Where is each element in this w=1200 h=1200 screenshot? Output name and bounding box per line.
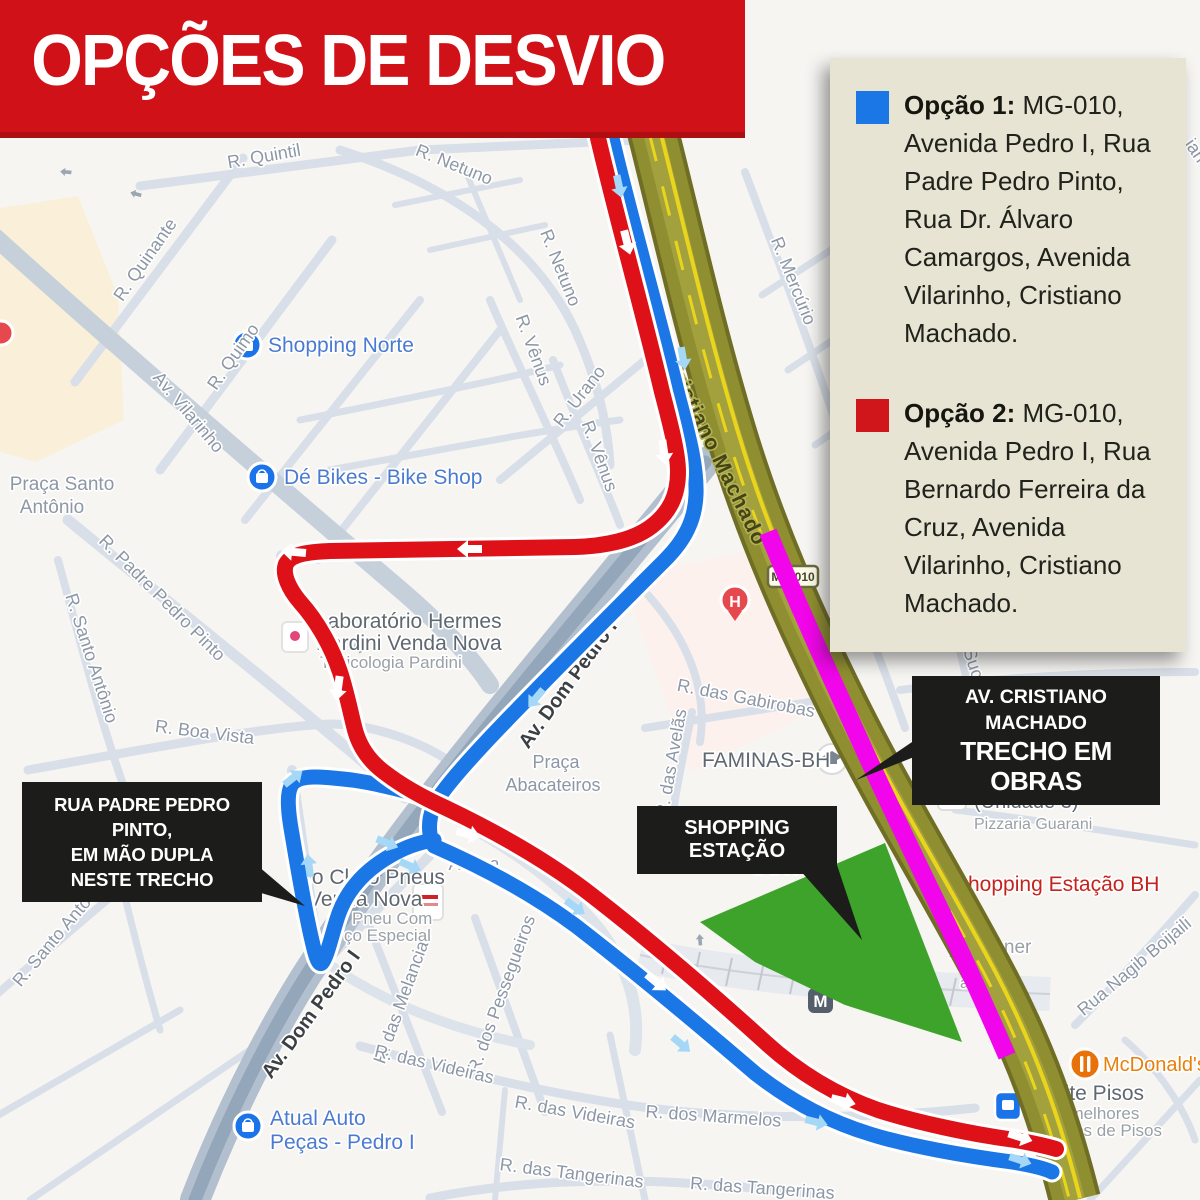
- callout-line: RUA PADRE PEDRO PINTO,: [28, 792, 256, 842]
- infographic-root: { "title": "OPÇÕES DE DESVIO", "legend":…: [0, 0, 1200, 1200]
- street-label: Praça: [532, 752, 580, 772]
- title-banner: OPÇÕES DE DESVIO: [0, 0, 745, 138]
- svg-text:H: H: [729, 594, 741, 611]
- poi-label: Peças - Pedro I: [270, 1131, 415, 1154]
- atual-auto-icon: [234, 1112, 262, 1140]
- street-label: Antônio: [20, 497, 84, 518]
- street-label: Abacateiros: [505, 775, 600, 795]
- option1-color-swatch: [856, 91, 889, 124]
- callout-line: TRECHO EM OBRAS: [916, 736, 1156, 796]
- poi-label: McDonald's: [1103, 1054, 1200, 1076]
- poi-label: Laboratório Hermes: [316, 610, 502, 633]
- lab-pardini-icon: [282, 622, 308, 652]
- poi-label: Pizzaria Guarani: [974, 816, 1092, 833]
- street-label: Praça Santo: [10, 474, 115, 495]
- poi-label: Shopping Estação BH: [954, 873, 1159, 896]
- poi-label: FAMINAS-BH: [702, 749, 830, 772]
- poi-label: Shopping Norte: [268, 334, 414, 357]
- callout-trecho-em-obras: AV. CRISTIANO MACHADO TRECHO EM OBRAS: [912, 676, 1160, 805]
- option2-color-swatch: [856, 399, 889, 432]
- legend-option-1: Opção 1: MG-010, Avenida Pedro I, Rua Pa…: [856, 86, 1158, 352]
- callout-line: AV. CRISTIANO MACHADO: [916, 684, 1156, 736]
- page-title: OPÇÕES DE DESVIO: [0, 0, 685, 102]
- callout-line: EM MÃO DUPLA: [28, 842, 256, 867]
- callout-padre-pedro: RUA PADRE PEDRO PINTO, EM MÃO DUPLA NEST…: [22, 782, 262, 902]
- poi-label: Atual Auto: [270, 1107, 366, 1130]
- mcdonalds-icon: [1070, 1049, 1100, 1079]
- callout-line: NESTE TRECHO: [28, 867, 256, 892]
- callout-line: SHOPPING ESTAÇÃO: [641, 817, 833, 863]
- map-pin-icon: [0, 321, 13, 345]
- poi-label: Venda Nova: [308, 888, 423, 911]
- legend-option-1-text: Opção 1: MG-010, Avenida Pedro I, Rua Pa…: [904, 86, 1154, 352]
- legend-option-2: Opção 2: MG-010, Avenida Pedro I, Rua Be…: [856, 394, 1158, 622]
- legend-box: Opção 1: MG-010, Avenida Pedro I, Rua Pa…: [830, 58, 1186, 652]
- poi-label: Dé Bikes - Bike Shop: [284, 466, 482, 489]
- poi-label: ço Especial: [344, 926, 431, 945]
- legend-option-2-text: Opção 2: MG-010, Avenida Pedro I, Rua Be…: [904, 394, 1154, 622]
- de-bikes-icon: [248, 463, 276, 491]
- callout-shopping-estacao: SHOPPING ESTAÇÃO: [637, 806, 837, 874]
